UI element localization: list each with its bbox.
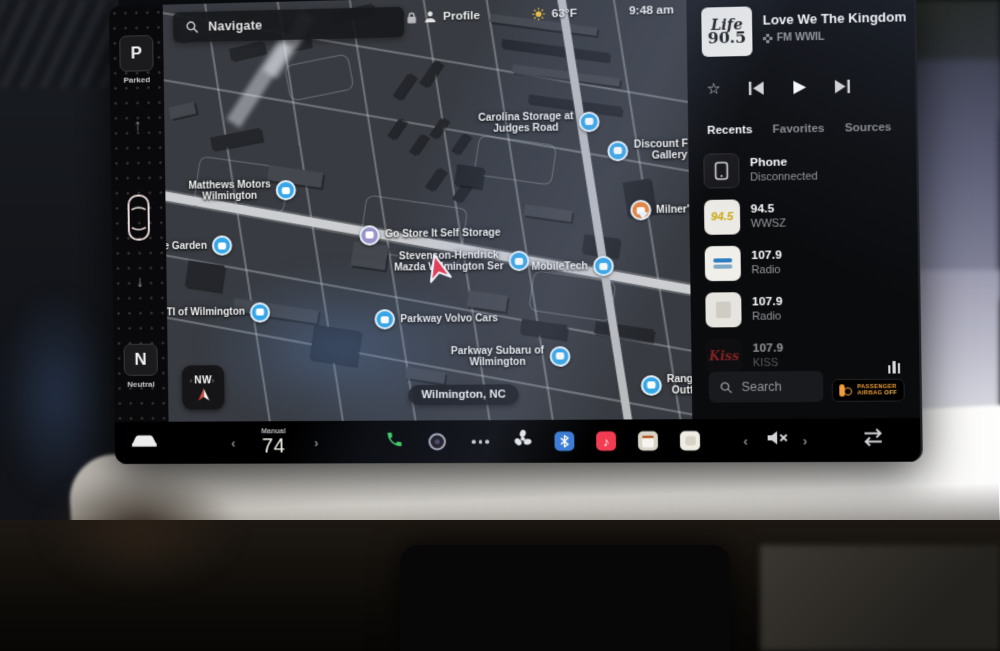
phone-device-icon [703, 153, 739, 189]
poi-range-outfitters[interactable]: Range TiOutfitti [640, 373, 692, 396]
building [520, 319, 567, 340]
map-pin-icon[interactable] [509, 251, 530, 272]
search-icon [719, 380, 733, 393]
outside-temperature: 63°F [551, 7, 577, 20]
map-pin-icon[interactable] [212, 236, 232, 256]
compass-needle-icon [197, 388, 210, 400]
music-app-icon[interactable]: ♪ [596, 431, 616, 451]
tab-recents[interactable]: Recents [707, 124, 752, 137]
station-logo [705, 292, 741, 327]
building [210, 128, 262, 150]
poi-milners[interactable]: Milner's [630, 199, 693, 221]
list-item-station-1079a[interactable]: 107.9 Radio [705, 237, 910, 286]
cabin-temperature: 74 [262, 436, 286, 456]
next-track-icon[interactable] [835, 79, 850, 93]
building [393, 74, 416, 101]
parking-loop [284, 54, 355, 102]
center-console [400, 545, 730, 651]
poi-stevenson-hendrick[interactable]: Stevenson-HendrickMazda Wilmington Ser [394, 250, 530, 274]
building [168, 102, 196, 120]
favorite-star-icon[interactable]: ☆ [706, 79, 720, 98]
seat-area [760, 545, 1000, 651]
map-pin-icon[interactable] [608, 141, 629, 162]
compass-control[interactable]: ‹NW› [182, 365, 225, 409]
air-vent [0, 0, 118, 88]
building [419, 61, 442, 88]
play-icon[interactable] [793, 80, 807, 94]
airbag-state: OFF [884, 390, 897, 396]
underdash [40, 470, 240, 590]
building [454, 165, 483, 189]
car-interior-photo: P Parked ↑ ↓ N Neutral [0, 0, 1000, 651]
phone-app-icon[interactable] [385, 430, 404, 453]
building [185, 260, 225, 291]
climate-fan-icon[interactable] [513, 429, 533, 454]
building [388, 119, 406, 140]
lock-icon [406, 11, 417, 23]
media-search-input[interactable]: Search [709, 371, 824, 403]
fm-radio-icon [763, 34, 773, 44]
building [501, 39, 609, 61]
navigate-search-input[interactable]: Navigate [173, 7, 404, 43]
map-pin-icon[interactable] [549, 346, 570, 367]
poi-one-garden[interactable]: one Garden [163, 236, 233, 257]
media-panel: Life 90.5 Love We The Kingdom FM WWIL ☆ [686, 0, 922, 419]
station-945-logo: 94.5 [704, 199, 740, 235]
tab-sources[interactable]: Sources [845, 121, 892, 134]
app-launcher-bar: ‹ Manual 74 › [115, 418, 923, 464]
search-icon [185, 20, 199, 34]
profile-person-icon [423, 10, 437, 24]
passenger-airbag-badge: PASSENGER AIRBAG OFF [831, 379, 904, 402]
station-logo [705, 245, 741, 280]
profile-menu[interactable]: Profile [406, 9, 480, 24]
media-tabs: Recents Favorites Sources [707, 121, 891, 137]
media-search-row: Search PASSENGER AIRBAG OFF [708, 361, 904, 403]
tab-favorites[interactable]: Favorites [772, 123, 824, 136]
shift-down-arrow-icon[interactable]: ↓ [130, 274, 148, 292]
map-pin-icon[interactable] [593, 256, 614, 277]
gear-park-indicator: P [119, 35, 153, 72]
track-title: Love We The Kingdom [763, 10, 907, 28]
map-pin-icon[interactable] [250, 302, 270, 322]
profile-label: Profile [443, 9, 480, 22]
temp-increase-chevron[interactable]: › [314, 435, 319, 450]
list-item-station-1079b[interactable]: 107.9 Radio [705, 284, 910, 333]
equalizer-icon[interactable] [888, 361, 901, 374]
map-pin-icon[interactable] [276, 180, 297, 200]
bluetooth-app-icon[interactable] [554, 432, 574, 451]
gear-park-label: Parked [110, 75, 164, 85]
navigation-map[interactable]: Carolina Storage atJudges Road Discount … [163, 0, 693, 422]
poi-discount-furn[interactable]: Discount FurnGallery [608, 138, 693, 162]
shift-up-arrow-icon[interactable]: ↑ [128, 117, 146, 135]
navigate-placeholder: Navigate [208, 18, 262, 33]
media-list: Phone Disconnected 94.5 94.5 WWSZ 107.9 … [703, 144, 911, 379]
poi-parkway-volvo[interactable]: Parkway Volvo Cars [375, 308, 498, 330]
weather-status: 63°F [532, 7, 577, 21]
volume-up-chevron[interactable]: › [803, 433, 808, 449]
map-pin-icon[interactable] [640, 375, 661, 396]
parking-loop [473, 135, 557, 186]
poi-ti-of-wilmington[interactable]: TI of Wilmington [166, 302, 270, 323]
volume-down-chevron[interactable]: ‹ [743, 433, 748, 448]
building [409, 135, 427, 156]
sun-icon [532, 7, 546, 21]
temp-decrease-chevron[interactable]: ‹ [231, 435, 236, 450]
building [524, 204, 573, 222]
notes-app-icon[interactable] [680, 431, 700, 451]
map-pin-icon[interactable] [375, 309, 396, 329]
locality-badge: Wilmington, NC [408, 385, 519, 406]
dashcam-icon[interactable] [428, 433, 446, 450]
all-apps-icon[interactable] [472, 440, 489, 444]
gear-neutral-indicator: N [123, 344, 157, 376]
list-item-phone[interactable]: Phone Disconnected [703, 144, 908, 194]
compass-heading: NW [194, 375, 212, 386]
poi-matthews-motors[interactable]: Matthews MotorsWilmington [188, 179, 296, 203]
airbag-icon [839, 383, 852, 398]
album-art[interactable]: Life 90.5 [701, 6, 752, 57]
poi-go-store-it[interactable]: Go Store It Self Storage [359, 223, 500, 245]
mute-speaker-icon[interactable] [766, 430, 790, 452]
map-pin-icon[interactable] [579, 111, 600, 132]
compass-ticks: ‹NW› [190, 375, 217, 386]
gear-neutral-label: Neutral [114, 380, 168, 389]
climate-temperature-control[interactable]: Manual 74 [261, 428, 286, 456]
list-item-station-945[interactable]: 94.5 94.5 WWSZ [704, 191, 909, 240]
building [425, 168, 445, 192]
poi-carolina-storage[interactable]: Carolina Storage atJudges Road [478, 110, 599, 135]
tesla-touchscreen: P Parked ↑ ↓ N Neutral [109, 0, 923, 464]
media-source: FM WWIL [763, 30, 907, 45]
now-playing[interactable]: Life 90.5 Love We The Kingdom FM WWIL [701, 3, 907, 57]
gear-selector-strip[interactable]: P Parked ↑ ↓ N Neutral [109, 5, 169, 422]
media-controls: ☆ [706, 77, 850, 99]
map-pin-icon[interactable] [359, 225, 380, 246]
clock: 9:48 am [629, 4, 674, 17]
building [229, 41, 265, 61]
building [451, 134, 469, 155]
poi-mobiletech[interactable]: MobileTech [531, 256, 614, 277]
vehicle-top-view-icon [125, 193, 152, 246]
poi-parkway-subaru[interactable]: Parkway Subaru ofWilmington [451, 345, 570, 368]
vehicle-controls-icon[interactable] [131, 433, 158, 453]
calendar-app-icon[interactable] [638, 431, 658, 451]
swap-arrows-icon[interactable] [860, 428, 886, 452]
restaurant-pin-icon[interactable] [630, 200, 651, 221]
search-placeholder: Search [741, 379, 782, 394]
previous-track-icon[interactable] [749, 81, 764, 95]
